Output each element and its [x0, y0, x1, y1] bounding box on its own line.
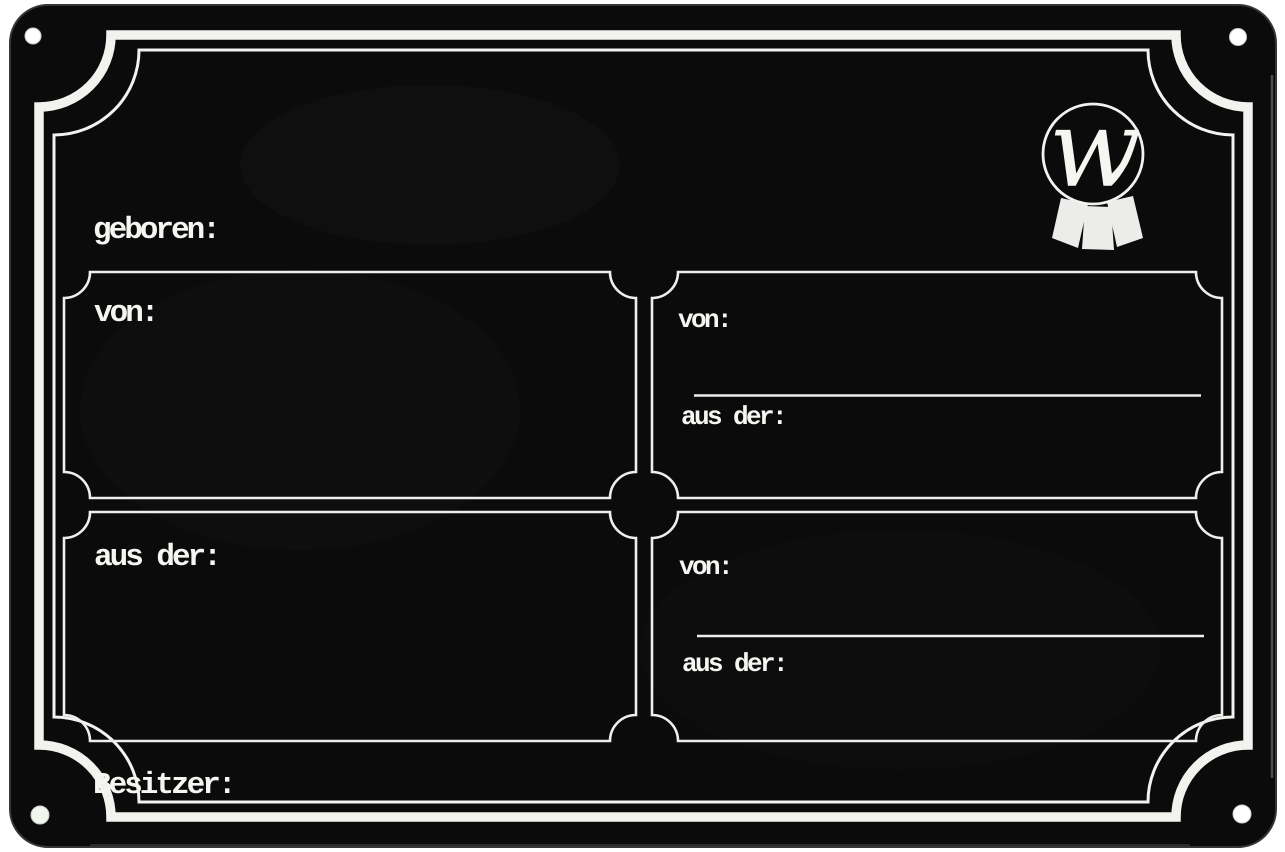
aus-der-label-bottom-left: aus der:	[94, 540, 219, 575]
screw-hole-bottom-left	[31, 806, 49, 824]
von-label-bottom-right: von:	[679, 552, 731, 582]
aus-der-label-bottom-right: aus der:	[682, 649, 786, 679]
von-label-top-left: von:	[94, 296, 156, 331]
stall-sign-photo: geboren: w von: aus der: von: aus der: v…	[0, 0, 1285, 852]
ribbon-tail-middle	[1082, 206, 1114, 250]
screw-hole-top-left	[25, 28, 41, 44]
stall-sign: geboren: w von: aus der: von: aus der: v…	[0, 0, 1285, 852]
screw-hole-top-right	[1230, 29, 1247, 46]
screw-hole-bottom-right	[1233, 805, 1251, 823]
geboren-label: geboren:	[93, 213, 218, 248]
von-label-top-right: von:	[678, 305, 730, 335]
besitzer-label: Besitzer:	[93, 768, 233, 803]
aus-der-label-top-right: aus der:	[681, 402, 785, 432]
logo-letter: w	[1049, 87, 1141, 212]
logo: w	[1043, 87, 1143, 250]
